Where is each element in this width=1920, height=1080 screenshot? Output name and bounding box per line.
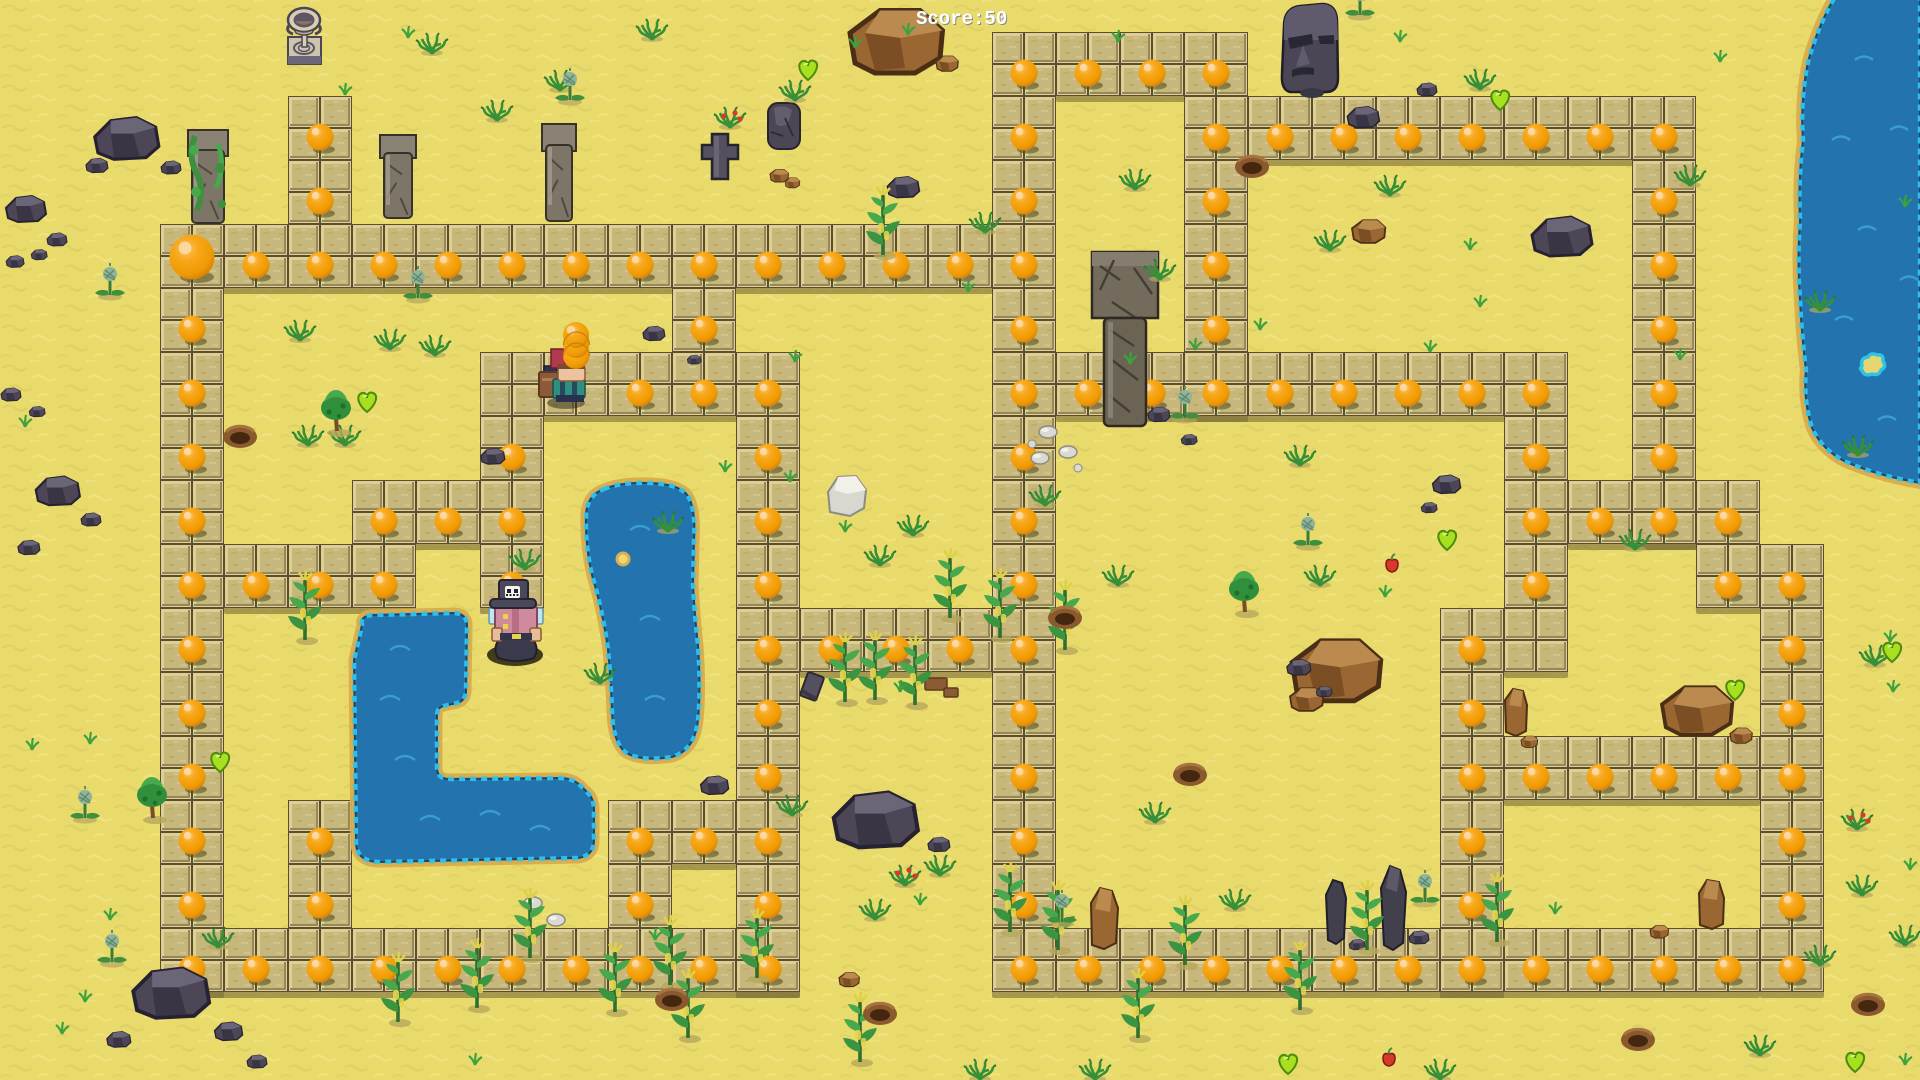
svg-text:Score:50: Score:50 [916,8,1007,30]
